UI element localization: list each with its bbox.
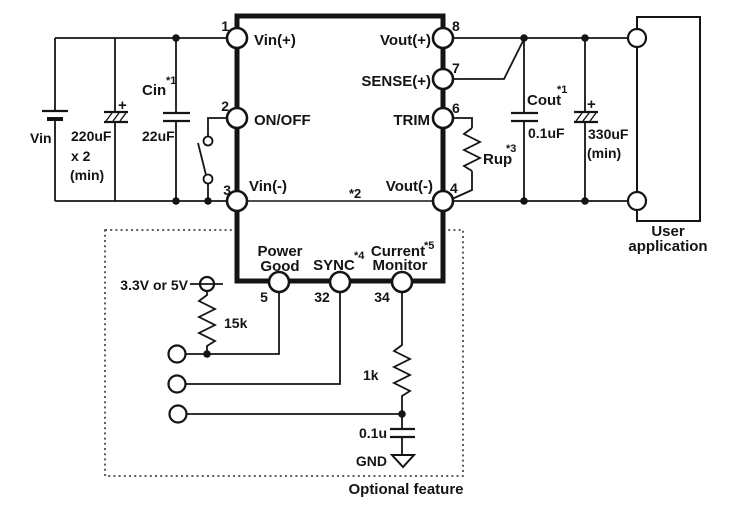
pin-2-label: ON/OFF: [254, 112, 311, 129]
pin-5-label-line2: Good: [260, 258, 299, 275]
junction-dot: [172, 34, 180, 42]
pullup-15k-resistor: [199, 291, 215, 354]
cin-plates: [163, 113, 190, 121]
ground-label: GND: [356, 453, 387, 469]
input-bulk-capacitor-symbol: [104, 38, 128, 201]
pin-3-number: 3: [223, 182, 231, 198]
input-bulk-cap-value-3: (min): [70, 167, 104, 183]
power-module-application-schematic: Vin + 220uF x 2 (min) Cin *1 22uF 1 2 3 …: [0, 0, 748, 511]
junction-dot: [203, 350, 211, 358]
input-bulk-cap-polarity: +: [118, 97, 127, 114]
sync-terminal: [169, 376, 186, 393]
pin-32-footnote: *4: [354, 250, 365, 262]
cout-plates: [511, 113, 538, 121]
series-1k-resistor: [394, 292, 410, 414]
input-bulk-cap-value-2: x 2: [71, 148, 91, 164]
rup-footnote: *3: [506, 143, 516, 155]
supply-voltage-label: 3.3V or 5V: [120, 277, 188, 293]
schematic-page: Vin + 220uF x 2 (min) Cin *1 22uF 1 2 3 …: [0, 0, 748, 511]
user-application-top-terminal: [628, 29, 646, 47]
pin-3-label: Vin(-): [249, 178, 287, 195]
rup-zigzag: [464, 128, 480, 171]
filter-cap-plates: [390, 429, 415, 437]
pin-6-trim: [433, 108, 453, 128]
output-circuit: [443, 17, 700, 221]
filter-capacitor-symbol: [390, 414, 415, 455]
on-off-switch-symbol: [198, 118, 237, 201]
cin-capacitor-symbol: [163, 38, 190, 201]
user-application-box: [637, 17, 700, 221]
pin-1-label: Vin(+): [254, 32, 296, 49]
switch-lower-contact: [204, 175, 213, 184]
vin-battery-symbol: [42, 38, 68, 201]
ground-symbol: [392, 455, 414, 467]
output-bulk-capacitor-symbol: [574, 38, 598, 201]
switch-upper-contact: [204, 137, 213, 146]
pullup-resistor-value: 15k: [224, 315, 248, 331]
cout-value: 0.1uF: [528, 125, 565, 141]
out-bulk-cap-hatch: [576, 113, 596, 121]
switch-blade: [198, 143, 206, 175]
cin-value: 22uF: [142, 128, 175, 144]
cin-footnote: *1: [166, 75, 176, 87]
pin-6-label: TRIM: [393, 112, 430, 129]
junction-dot: [520, 34, 528, 42]
pin-34-footnote: *5: [424, 240, 434, 252]
pin-8-vout-plus: [433, 28, 453, 48]
pin-5-power-good: [269, 272, 289, 292]
cout-footnote: *1: [557, 84, 567, 96]
pin-34-label-line2: Monitor: [373, 257, 428, 274]
current-monitor-terminal: [170, 406, 187, 423]
user-application-bottom-terminal: [628, 192, 646, 210]
pin-1-number: 1: [221, 18, 229, 34]
pin-6-number: 6: [452, 100, 460, 116]
junction-dot: [581, 34, 589, 42]
cin-name: Cin: [142, 82, 166, 99]
user-application-label-line2: application: [628, 238, 707, 255]
pin-32-number: 32: [314, 289, 330, 305]
power-good-terminal: [169, 346, 186, 363]
pin-1-vin-plus: [227, 28, 247, 48]
output-bulk-cap-value-2: (min): [587, 145, 621, 161]
converter-module-outline: [237, 16, 443, 281]
filter-cap-value: 0.1u: [359, 425, 387, 441]
pin-5-number: 5: [260, 289, 268, 305]
input-bulk-cap-value-1: 220uF: [71, 128, 112, 144]
pin-2-number: 2: [221, 98, 229, 114]
pin-8-number: 8: [452, 18, 460, 34]
junction-dot: [581, 197, 589, 205]
pin-4-label: Vout(-): [386, 178, 433, 195]
series-resistor-value: 1k: [363, 367, 379, 383]
output-bulk-cap-polarity: +: [587, 96, 596, 113]
pin-34-number: 34: [374, 289, 390, 305]
vin-source-label: Vin: [30, 130, 52, 146]
pin-7-number: 7: [452, 60, 460, 76]
pin-8-label: Vout(+): [380, 32, 431, 49]
junction-dot: [204, 197, 212, 205]
internal-footnote: *2: [349, 186, 361, 201]
pin-7-sense-plus: [433, 69, 453, 89]
pin-4-number: 4: [450, 180, 458, 196]
junction-dot: [172, 197, 180, 205]
rup-resistor-symbol: [443, 118, 480, 199]
output-bulk-cap-value-1: 330uF: [588, 126, 629, 142]
pin-32-label: SYNC: [313, 257, 355, 274]
junction-dot: [520, 197, 528, 205]
cout-capacitor-symbol: [511, 38, 538, 201]
pin-34-current-monitor: [392, 272, 412, 292]
pin-7-label: SENSE(+): [361, 73, 431, 90]
pin-2-on-off: [227, 108, 247, 128]
pin-32-sync: [330, 272, 350, 292]
optional-feature-caption: Optional feature: [348, 481, 463, 498]
bulk-cap-hatch: [106, 113, 126, 121]
